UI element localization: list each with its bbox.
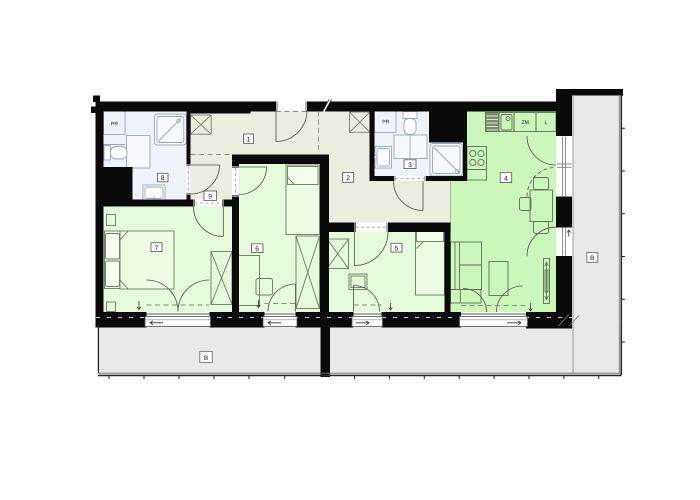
svg-text:3: 3	[408, 162, 412, 169]
svg-text:B: B	[590, 255, 594, 262]
svg-text:PR: PR	[382, 120, 389, 126]
svg-text:2: 2	[346, 175, 350, 182]
svg-text:4: 4	[504, 175, 508, 182]
svg-text:6: 6	[255, 246, 259, 253]
svg-text:5: 5	[395, 245, 399, 252]
svg-text:9: 9	[208, 193, 212, 200]
svg-text:1: 1	[247, 136, 251, 143]
svg-text:ZM: ZM	[521, 120, 529, 126]
svg-text:L: L	[545, 120, 548, 126]
svg-text:8: 8	[161, 175, 165, 182]
svg-text:PR: PR	[111, 122, 118, 128]
svg-text:B: B	[204, 355, 208, 362]
svg-text:7: 7	[155, 245, 159, 252]
